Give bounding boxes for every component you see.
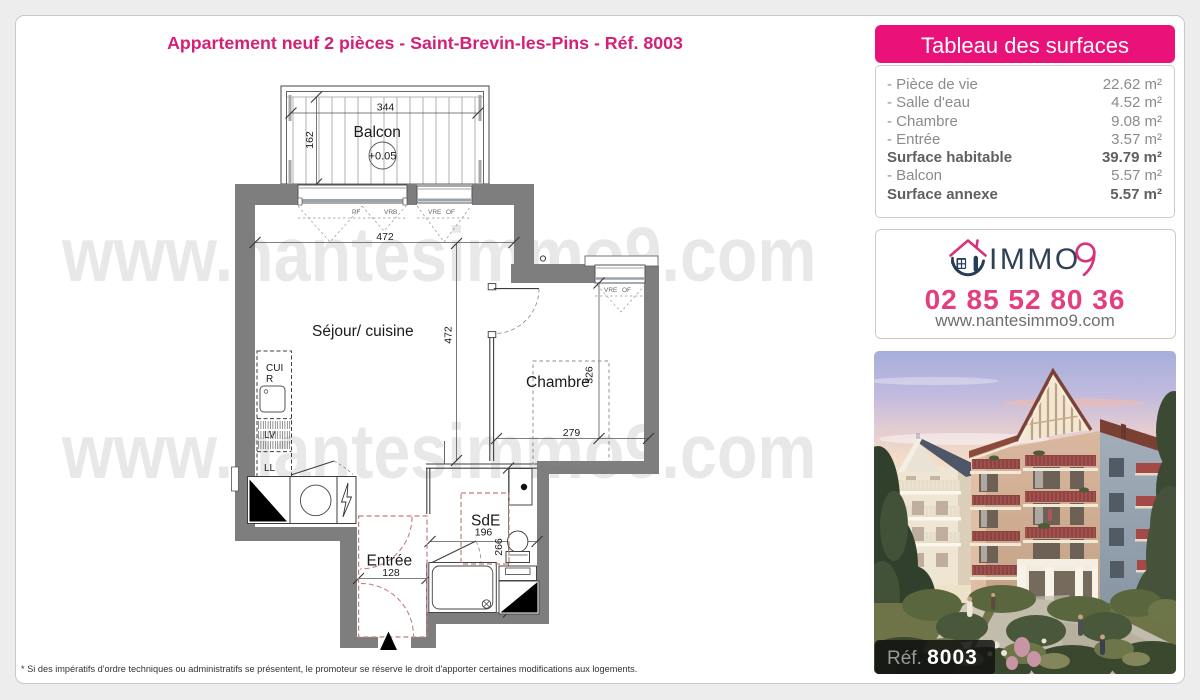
svg-text:VRE: VRE bbox=[604, 287, 618, 294]
svg-text:472: 472 bbox=[376, 231, 394, 243]
svg-text:VRE: VRE bbox=[428, 209, 442, 216]
svg-text:472: 472 bbox=[443, 326, 455, 344]
svg-text:Balcon: Balcon bbox=[354, 124, 401, 141]
svg-text:CUI: CUI bbox=[266, 363, 283, 374]
svg-text:PF: PF bbox=[352, 209, 360, 216]
svg-text:R: R bbox=[266, 374, 273, 385]
svg-text:OF: OF bbox=[622, 287, 631, 294]
svg-text:344: 344 bbox=[377, 102, 395, 114]
svg-text:Entrée: Entrée bbox=[367, 553, 413, 570]
svg-text:279: 279 bbox=[563, 427, 581, 439]
svg-text:Chambre: Chambre bbox=[526, 374, 590, 391]
svg-text:+0.05: +0.05 bbox=[369, 151, 397, 163]
svg-text:162: 162 bbox=[304, 131, 316, 149]
svg-text:SdE: SdE bbox=[471, 513, 500, 530]
svg-text:IMMO: IMMO bbox=[989, 243, 1081, 276]
svg-text:LL: LL bbox=[264, 463, 276, 474]
svg-text:266: 266 bbox=[493, 538, 505, 556]
svg-text:OF: OF bbox=[446, 209, 455, 216]
svg-text:Séjour/ cuisine: Séjour/ cuisine bbox=[312, 323, 414, 340]
svg-text:VRB: VRB bbox=[384, 209, 397, 216]
